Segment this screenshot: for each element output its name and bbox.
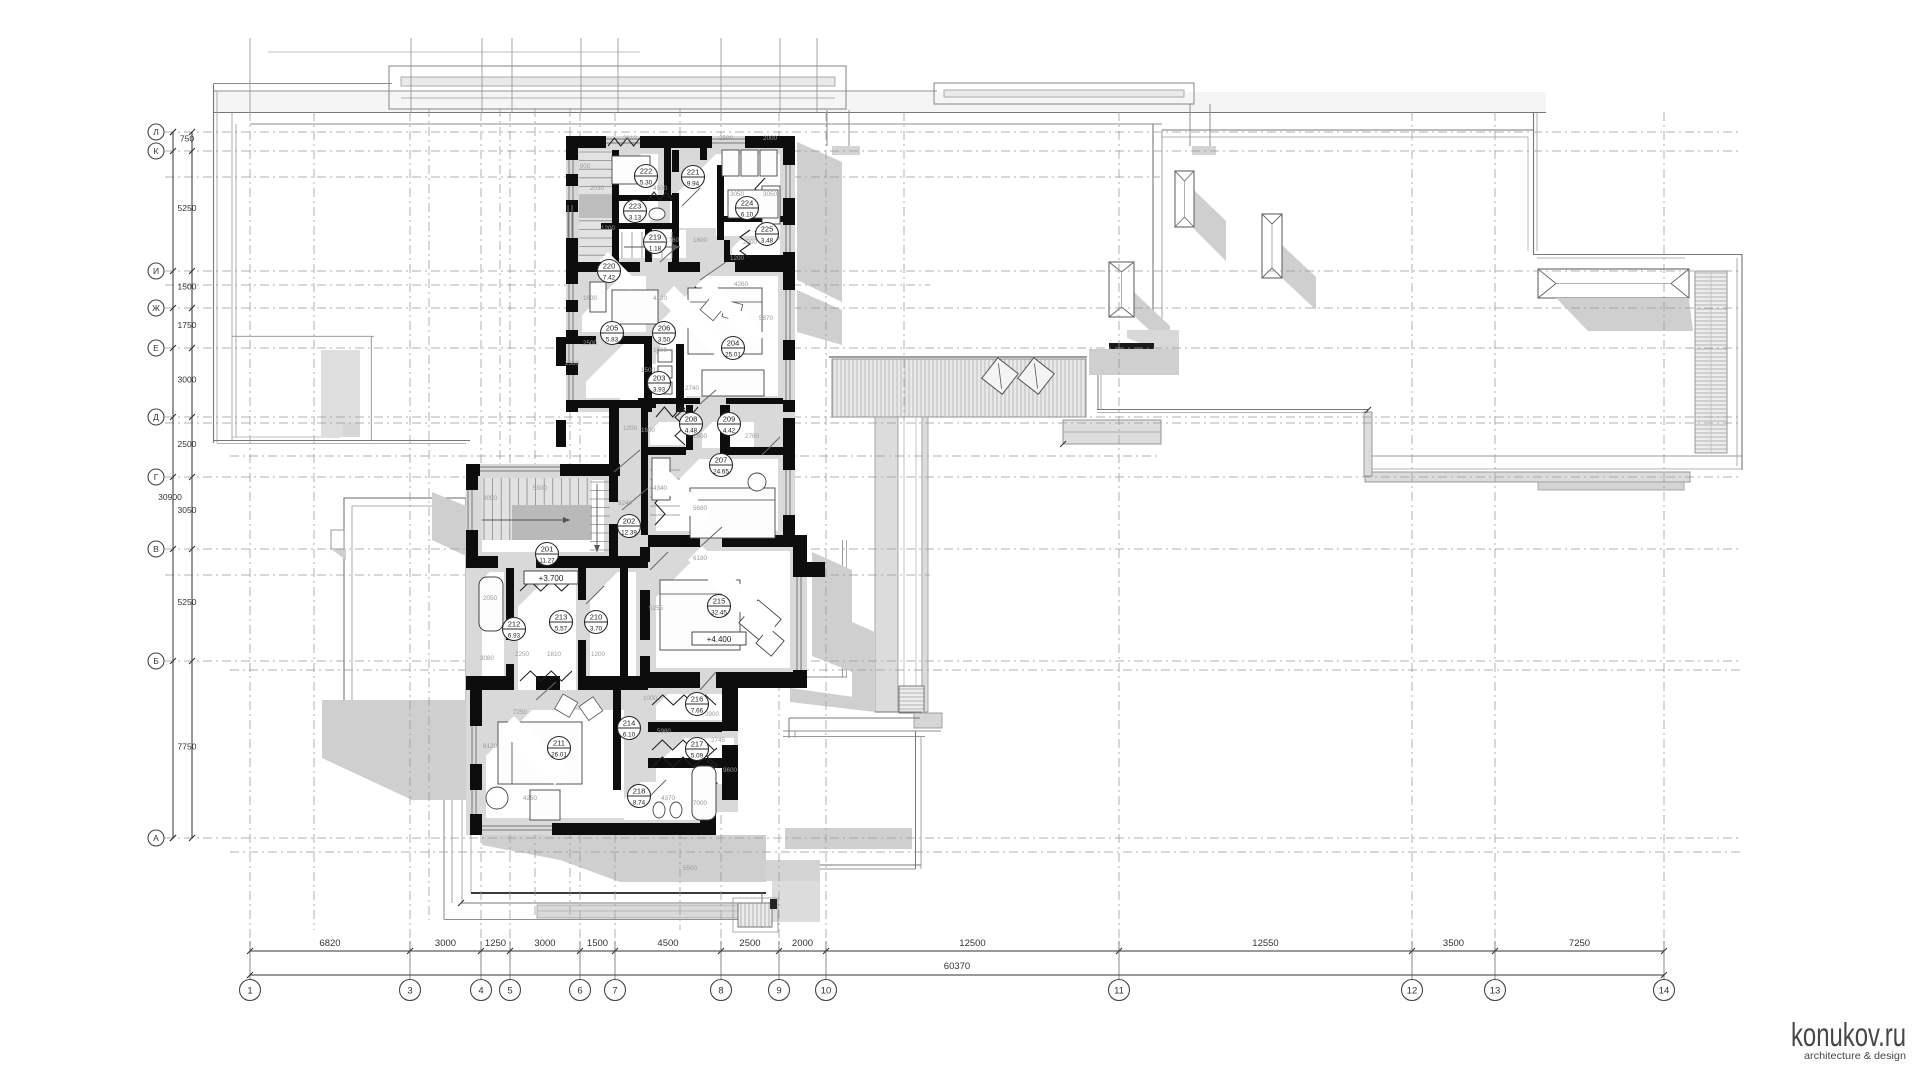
svg-text:2610: 2610 [623, 135, 638, 142]
svg-text:5.83: 5.83 [606, 337, 619, 344]
svg-text:11: 11 [1114, 986, 1124, 997]
svg-text:222: 222 [640, 167, 653, 176]
svg-text:12500: 12500 [959, 938, 985, 949]
svg-text:220: 220 [603, 262, 616, 271]
svg-text:В: В [153, 544, 159, 554]
svg-text:6820: 6820 [319, 938, 340, 949]
svg-text:1500: 1500 [178, 282, 197, 292]
svg-text:2900: 2900 [743, 239, 758, 246]
svg-text:4260: 4260 [734, 281, 749, 288]
svg-text:9240: 9240 [618, 500, 633, 507]
svg-text:5250: 5250 [178, 597, 197, 607]
svg-text:205: 205 [606, 324, 619, 333]
svg-text:А: А [153, 833, 159, 843]
svg-text:2500: 2500 [719, 135, 734, 142]
svg-text:207: 207 [715, 456, 728, 465]
svg-text:2330: 2330 [565, 360, 580, 367]
svg-text:5.57: 5.57 [555, 626, 568, 633]
svg-text:3050: 3050 [730, 191, 745, 198]
svg-text:213: 213 [555, 613, 568, 622]
svg-text:32.45: 32.45 [711, 610, 727, 617]
svg-text:1000: 1000 [643, 695, 658, 702]
svg-text:2500: 2500 [178, 439, 197, 449]
svg-text:212: 212 [508, 620, 521, 629]
svg-text:3900: 3900 [705, 711, 720, 718]
svg-text:2745: 2745 [711, 737, 726, 744]
svg-text:architecture & design: architecture & design [1804, 1050, 1906, 1062]
svg-text:223: 223 [629, 202, 642, 211]
svg-text:9: 9 [776, 986, 781, 997]
svg-text:216: 216 [691, 695, 704, 704]
svg-text:3050: 3050 [763, 191, 778, 198]
svg-text:204: 204 [727, 339, 740, 348]
svg-text:3.13: 3.13 [629, 215, 642, 222]
svg-text:Г: Г [154, 472, 159, 482]
svg-text:3080: 3080 [480, 655, 495, 662]
svg-text:14: 14 [1659, 986, 1670, 997]
svg-text:2000: 2000 [792, 938, 813, 949]
svg-text:25.01: 25.01 [725, 352, 741, 359]
svg-text:4370: 4370 [661, 795, 676, 802]
svg-text:Ж: Ж [152, 303, 160, 313]
svg-text:203: 203 [653, 374, 666, 383]
svg-text:5.30: 5.30 [640, 180, 653, 187]
svg-text:5500: 5500 [533, 485, 548, 492]
svg-text:2050: 2050 [483, 595, 498, 602]
svg-text:4500: 4500 [657, 938, 678, 949]
svg-text:6: 6 [577, 986, 582, 997]
svg-text:3000: 3000 [534, 938, 555, 949]
svg-text:2250: 2250 [515, 651, 530, 658]
svg-text:218: 218 [633, 787, 646, 796]
svg-text:12550: 12550 [1252, 938, 1278, 949]
svg-text:7.42: 7.42 [603, 275, 616, 282]
svg-text:11.27: 11.27 [539, 558, 555, 565]
svg-text:+4.400: +4.400 [707, 635, 732, 644]
svg-text:Б: Б [153, 656, 159, 666]
svg-text:К: К [154, 146, 159, 156]
svg-text:4120: 4120 [653, 295, 668, 302]
svg-text:8.74: 8.74 [633, 800, 646, 807]
svg-text:225: 225 [761, 225, 774, 234]
svg-text:24.65: 24.65 [713, 469, 729, 476]
svg-text:210: 210 [590, 613, 603, 622]
svg-text:209: 209 [723, 415, 736, 424]
svg-text:Л: Л [153, 127, 159, 137]
svg-text:1.18: 1.18 [649, 246, 662, 253]
svg-text:2030: 2030 [590, 185, 605, 192]
svg-text:2760: 2760 [745, 433, 760, 440]
svg-text:5: 5 [507, 986, 512, 997]
svg-text:4: 4 [478, 986, 483, 997]
svg-text:30900: 30900 [158, 492, 182, 502]
svg-text:12.39: 12.39 [621, 530, 637, 537]
svg-text:900: 900 [580, 163, 591, 170]
svg-text:6.93: 6.93 [508, 633, 521, 640]
svg-text:1200: 1200 [601, 225, 616, 232]
svg-text:6180: 6180 [693, 555, 708, 562]
svg-text:3.93: 3.93 [653, 387, 666, 394]
svg-text:4340: 4340 [653, 485, 668, 492]
svg-text:9.94: 9.94 [687, 181, 700, 188]
svg-text:6.10: 6.10 [741, 212, 754, 219]
svg-text:7: 7 [612, 986, 617, 997]
svg-text:Д: Д [153, 412, 159, 422]
svg-text:1200: 1200 [623, 425, 638, 432]
svg-text:7250: 7250 [1569, 938, 1590, 949]
svg-text:219: 219 [649, 233, 662, 242]
svg-text:6120: 6120 [483, 743, 498, 750]
svg-text:konukov.ru: konukov.ru [1791, 1016, 1906, 1053]
svg-text:7.66: 7.66 [691, 708, 704, 715]
svg-text:208: 208 [685, 415, 698, 424]
svg-text:12: 12 [1407, 986, 1418, 997]
svg-text:3050: 3050 [178, 505, 197, 515]
svg-text:2800: 2800 [693, 433, 708, 440]
svg-text:26.01: 26.01 [551, 752, 567, 759]
svg-text:3050: 3050 [483, 495, 498, 502]
svg-text:214: 214 [623, 719, 636, 728]
svg-text:1200: 1200 [730, 255, 745, 262]
svg-text:1810: 1810 [547, 651, 562, 658]
svg-text:4.42: 4.42 [723, 428, 736, 435]
svg-text:10: 10 [821, 986, 832, 997]
svg-text:13: 13 [1490, 986, 1501, 997]
svg-text:3500: 3500 [1443, 938, 1464, 949]
svg-text:1500: 1500 [653, 347, 668, 354]
svg-text:215: 215 [713, 597, 726, 606]
svg-text:3000: 3000 [178, 375, 197, 385]
svg-text:211: 211 [553, 739, 565, 748]
svg-text:9600: 9600 [723, 767, 738, 774]
svg-text:1600: 1600 [583, 295, 598, 302]
svg-text:750: 750 [180, 134, 194, 144]
svg-text:1500: 1500 [587, 938, 608, 949]
svg-text:1750: 1750 [178, 320, 197, 330]
svg-text:2500: 2500 [583, 340, 598, 347]
svg-text:1200: 1200 [591, 651, 606, 658]
svg-text:+3.700: +3.700 [539, 574, 564, 583]
svg-text:1600: 1600 [693, 237, 708, 244]
svg-text:1500: 1500 [641, 367, 656, 374]
svg-text:5680: 5680 [693, 505, 708, 512]
svg-text:3000: 3000 [435, 938, 456, 949]
svg-text:202: 202 [623, 517, 636, 526]
svg-text:5.09: 5.09 [691, 753, 704, 760]
svg-text:2000: 2000 [763, 135, 778, 142]
svg-text:4500: 4500 [653, 185, 668, 192]
svg-text:8: 8 [718, 986, 723, 997]
svg-text:5255: 5255 [649, 605, 664, 612]
svg-text:5250: 5250 [178, 203, 197, 213]
svg-text:Е: Е [153, 343, 159, 353]
svg-text:2500: 2500 [739, 938, 760, 949]
svg-text:3: 3 [407, 986, 412, 997]
svg-text:1760: 1760 [665, 237, 680, 244]
svg-text:206: 206 [658, 324, 671, 333]
svg-text:1: 1 [247, 986, 252, 997]
svg-text:7000: 7000 [693, 800, 708, 807]
svg-text:224: 224 [741, 199, 754, 208]
svg-text:221: 221 [687, 168, 700, 177]
svg-text:7750: 7750 [178, 742, 197, 752]
svg-text:И: И [153, 266, 159, 276]
svg-text:5500: 5500 [683, 865, 698, 872]
svg-text:3.50: 3.50 [658, 337, 671, 344]
svg-text:7250: 7250 [513, 709, 528, 716]
svg-text:2740: 2740 [685, 385, 700, 392]
svg-text:5870: 5870 [759, 315, 774, 322]
svg-text:5980: 5980 [657, 728, 672, 735]
svg-text:217: 217 [691, 740, 704, 749]
svg-text:60370: 60370 [944, 961, 970, 972]
svg-text:3.70: 3.70 [590, 626, 603, 633]
svg-text:1250: 1250 [485, 938, 506, 949]
svg-text:201: 201 [541, 545, 554, 554]
svg-text:6.10: 6.10 [623, 732, 636, 739]
svg-text:4250: 4250 [523, 795, 538, 802]
svg-text:1600: 1600 [641, 427, 656, 434]
svg-text:3.48: 3.48 [761, 238, 774, 245]
